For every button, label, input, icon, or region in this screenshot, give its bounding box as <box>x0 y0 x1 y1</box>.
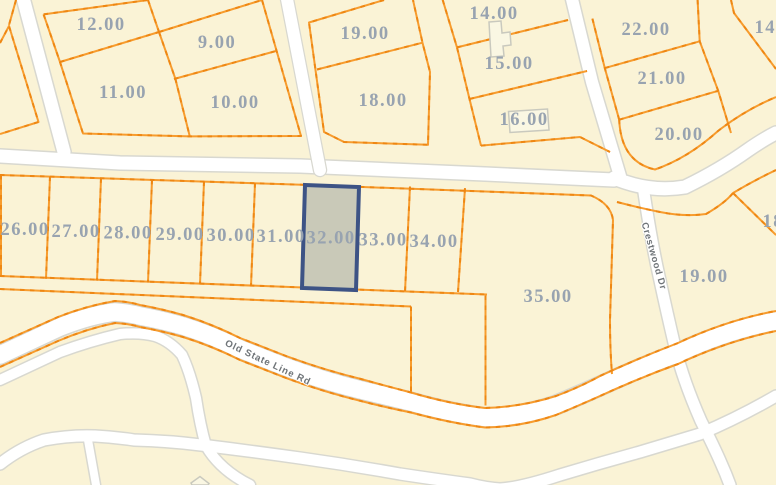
svg-text:28.00: 28.00 <box>103 224 152 244</box>
svg-text:26.00: 26.00 <box>0 220 49 240</box>
svg-text:14.00: 14.00 <box>754 18 776 38</box>
svg-text:10.00: 10.00 <box>210 93 259 113</box>
svg-text:14.00: 14.00 <box>469 4 518 24</box>
svg-text:32.00: 32.00 <box>306 229 355 249</box>
svg-text:18.00: 18.00 <box>762 212 776 232</box>
svg-text:9.00: 9.00 <box>198 33 236 53</box>
svg-text:30.00: 30.00 <box>206 226 255 246</box>
svg-text:12.00: 12.00 <box>76 15 125 35</box>
svg-text:19.00: 19.00 <box>679 267 728 287</box>
svg-text:15.00: 15.00 <box>484 54 533 74</box>
svg-text:27.00: 27.00 <box>51 222 100 242</box>
svg-text:11.00: 11.00 <box>99 83 147 103</box>
svg-text:18.00: 18.00 <box>358 91 407 111</box>
svg-text:31.00: 31.00 <box>256 227 305 247</box>
svg-text:34.00: 34.00 <box>409 232 458 252</box>
svg-text:29.00: 29.00 <box>155 225 204 245</box>
svg-text:20.00: 20.00 <box>654 125 703 145</box>
svg-text:16.00: 16.00 <box>499 110 548 130</box>
svg-text:22.00: 22.00 <box>621 20 670 40</box>
svg-text:33.00: 33.00 <box>358 231 407 251</box>
svg-text:35.00: 35.00 <box>523 287 572 307</box>
svg-text:21.00: 21.00 <box>637 69 686 89</box>
svg-text:19.00: 19.00 <box>340 24 389 44</box>
